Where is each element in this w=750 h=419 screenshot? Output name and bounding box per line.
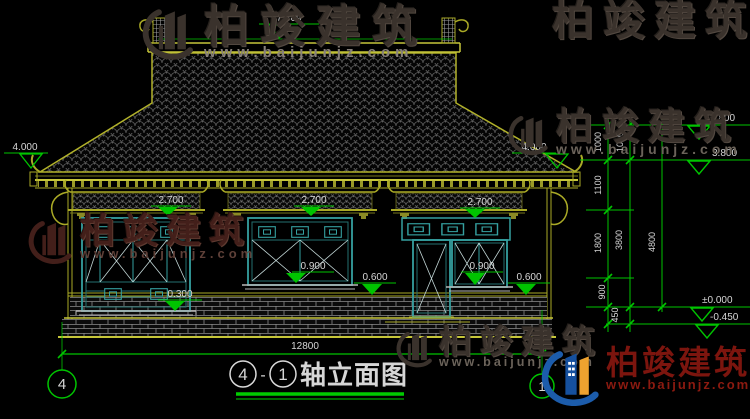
dim-label-4800: 4800 <box>647 232 657 252</box>
dim-label-450: 450 <box>610 307 620 322</box>
dim-label-1000-a: 1000 <box>593 132 603 152</box>
level-label-plinth-left: 0.600 <box>362 272 387 283</box>
dim-label-12800: 12800 <box>291 341 319 352</box>
level-label-zero: ±0.000 <box>702 295 733 306</box>
title-axis-start: 4 <box>238 365 247 384</box>
dim-label-1800: 1800 <box>593 233 603 253</box>
level-label-ridge: 7.469 <box>276 13 301 24</box>
level-label-neg450: -0.450 <box>710 312 739 323</box>
dim-label-900: 900 <box>597 284 607 299</box>
level-label-eave-right: 4.000 <box>521 142 546 153</box>
title-separator: - <box>260 367 265 384</box>
cad-elevation-canvas: 1000 1000 1100 1800 900 450 3800 4800 4.… <box>0 0 750 414</box>
dim-label-1100: 1100 <box>593 175 603 194</box>
title-text: 轴立面图 <box>300 360 408 390</box>
dim-label-1000-b: 1000 <box>615 132 625 152</box>
axis-bubble-left-label: 4 <box>58 376 66 393</box>
level-label-lintel-2: 2.700 <box>301 195 326 206</box>
level-label-lintel-1: 2.700 <box>158 195 183 206</box>
level-label-sill-2: 0.900 <box>300 261 325 272</box>
axis-bubble-right-label: 1 <box>538 379 545 394</box>
level-label-sill-1: 0.300 <box>167 289 192 300</box>
eave-dentils <box>38 181 576 187</box>
level-label-lintel-3: 2.700 <box>467 197 492 208</box>
level-label-eave-left: 4.000 <box>12 142 37 153</box>
level-label-4800: 4.800 <box>710 113 735 124</box>
dim-label-3800: 3800 <box>614 230 624 250</box>
title-axis-end: 1 <box>278 365 287 384</box>
level-label-plinth-right: 0.600 <box>516 272 541 283</box>
platform-brick <box>62 319 552 336</box>
level-label-3800: 3.800 <box>712 148 737 159</box>
level-label-sill-3: 0.900 <box>469 261 494 272</box>
